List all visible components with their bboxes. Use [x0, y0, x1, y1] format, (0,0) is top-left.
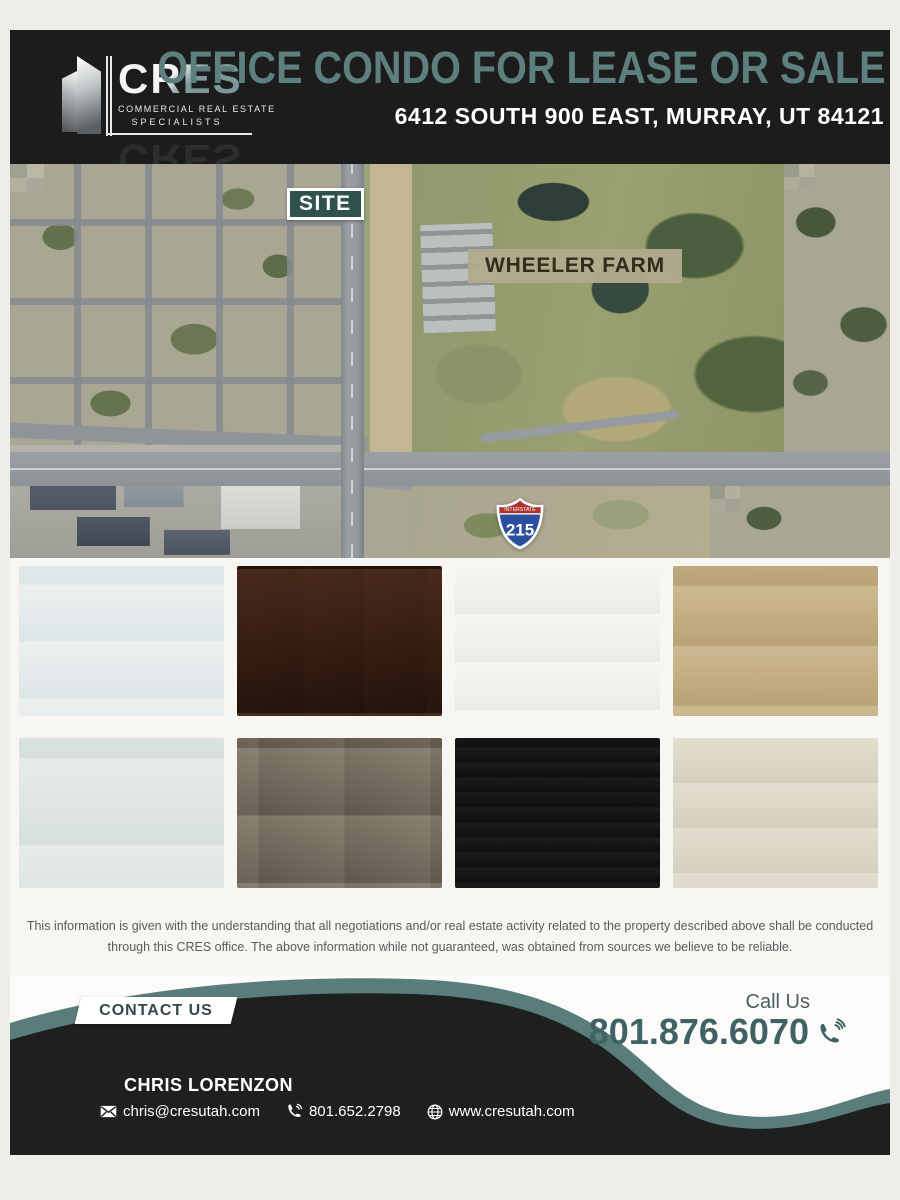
photo-grid — [10, 558, 890, 888]
map-residential-southeast — [710, 486, 890, 558]
map-road-900-east — [341, 164, 364, 558]
map-residential-east — [784, 164, 890, 456]
agent-name: CHRIS LORENZON — [124, 1075, 601, 1096]
interior-photo-kitchenette — [673, 566, 878, 716]
logo-divider-bars — [106, 56, 112, 136]
footer: CONTACT US Call Us 801.876.6070 CHRIS LO… — [10, 975, 890, 1155]
building-icon — [62, 70, 79, 132]
disclaimer-line-2: through this CRES office. The above info… — [10, 937, 890, 958]
map-freeway — [10, 452, 890, 486]
interstate-215-shield-icon: INTERSTATE 215 — [495, 497, 545, 550]
map-south-field — [412, 486, 710, 558]
logo-underline — [106, 133, 252, 135]
call-us-block: Call Us 801.876.6070 — [589, 991, 850, 1050]
svg-text:INTERSTATE: INTERSTATE — [504, 507, 536, 513]
brand-reflection: CRES — [118, 138, 243, 164]
brand-subtitle-2: SPECIALISTS — [118, 117, 236, 127]
main-phone-number: 801.876.6070 — [589, 1014, 809, 1050]
disclaimer-text: This information is given with the under… — [10, 916, 890, 958]
agent-phone-item: 801.652.2798 — [286, 1103, 401, 1120]
interior-photo-open-lounge — [673, 738, 878, 888]
contact-us-label: CONTACT US — [78, 997, 234, 1024]
interior-photo-executive-office — [19, 566, 224, 716]
aerial-map: SITE WHEELER FARM INTERSTATE 215 — [10, 164, 890, 558]
brand-subtitle-1: COMMERCIAL REAL ESTATE — [118, 104, 276, 114]
flyer-page: CRES COMMERCIAL REAL ESTATE SPECIALISTS … — [0, 0, 900, 1200]
photo-gallery-section: This information is given with the under… — [10, 558, 890, 975]
property-address: 6412 SOUTH 900 EAST, MURRAY, UT 84121 — [395, 103, 884, 130]
interior-photo-conference-office — [237, 566, 442, 716]
agent-website-item: www.cresutah.com — [427, 1103, 575, 1120]
email-icon — [100, 1105, 117, 1118]
agent-email: chris@cresutah.com — [123, 1103, 260, 1120]
disclaimer-line-1: This information is given with the under… — [10, 916, 890, 937]
globe-icon — [427, 1104, 443, 1120]
building-icon — [77, 56, 101, 134]
agent-website: www.cresutah.com — [449, 1103, 575, 1120]
phone-icon — [286, 1103, 303, 1120]
agent-email-item: chris@cresutah.com — [100, 1103, 260, 1120]
agent-phone: 801.652.2798 — [309, 1103, 401, 1120]
site-badge: SITE — [287, 188, 364, 220]
wheeler-farm-badge: WHEELER FARM — [468, 249, 682, 283]
interior-photo-corner-office — [19, 738, 224, 888]
interior-photo-reception-desk — [237, 738, 442, 888]
interior-photo-lounge-tv — [455, 566, 660, 716]
svg-text:215: 215 — [506, 521, 534, 540]
map-field-strip — [364, 164, 412, 456]
page-title: OFFICE CONDO FOR LEASE OR SALE — [158, 42, 886, 94]
interior-photo-office-bookcase — [455, 738, 660, 888]
phone-wave-icon — [814, 1016, 850, 1048]
header: CRES COMMERCIAL REAL ESTATE SPECIALISTS … — [10, 30, 890, 164]
agent-block: CHRIS LORENZON chris@cresutah.com 801.65… — [100, 1075, 601, 1120]
contact-us-badge: CONTACT US — [75, 997, 238, 1024]
